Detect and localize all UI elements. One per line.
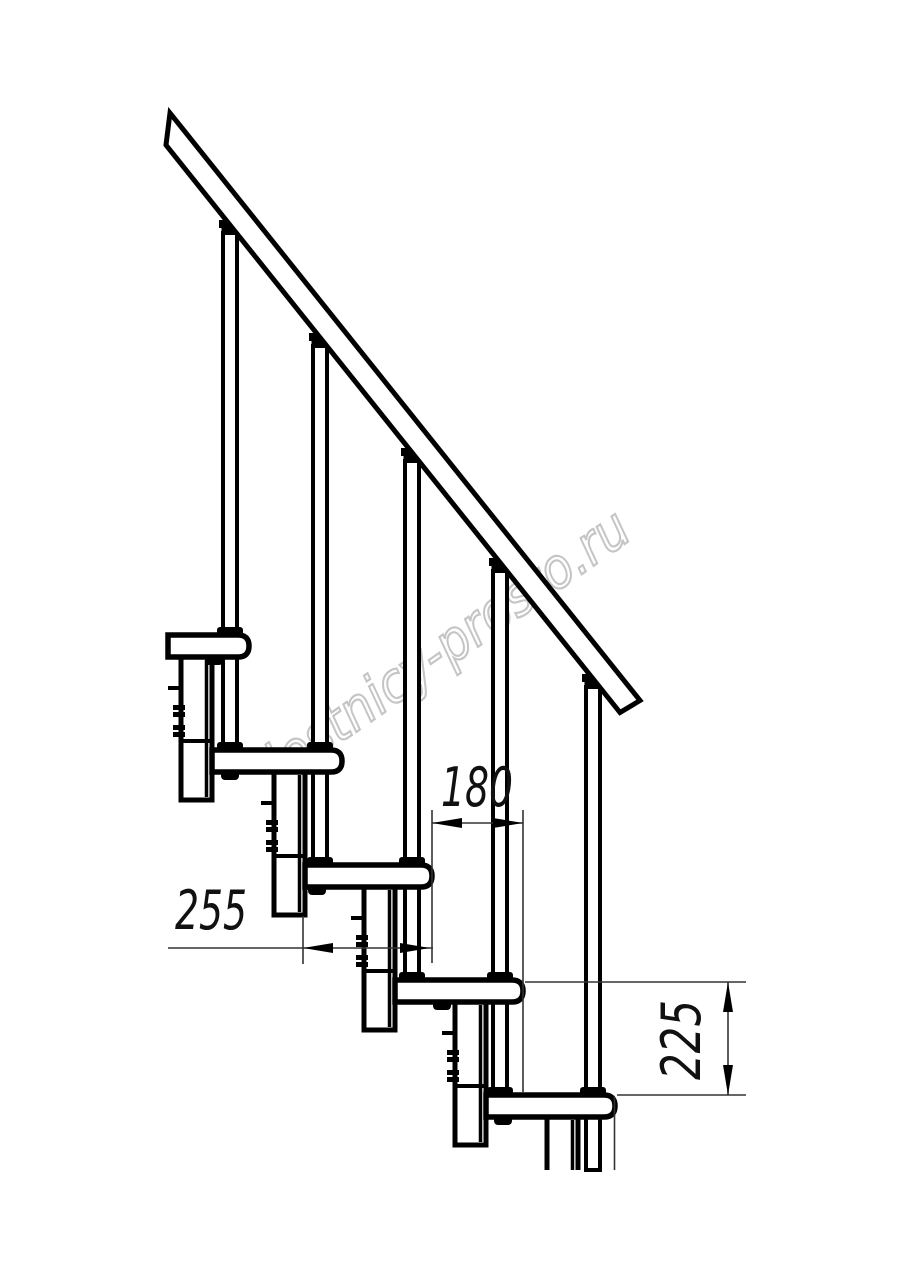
tread: [305, 865, 432, 887]
baluster: [493, 571, 507, 1095]
dimension-label-step-offset: 180: [441, 756, 513, 819]
dimension-label-tread-run: 255: [175, 879, 247, 942]
tread: [395, 980, 523, 1002]
tread: [212, 750, 342, 772]
stair-technical-drawing: lestnicy-prosto.ru: [0, 0, 914, 1280]
tread: [486, 1095, 615, 1117]
dimension-label-riser-height: 225: [650, 1000, 713, 1080]
tread: [168, 635, 249, 657]
support-module: [547, 1117, 578, 1170]
baluster: [223, 233, 237, 750]
baluster: [405, 461, 419, 980]
baluster: [313, 346, 327, 865]
drawing-page: lestnicy-prosto.ru: [0, 0, 914, 1280]
